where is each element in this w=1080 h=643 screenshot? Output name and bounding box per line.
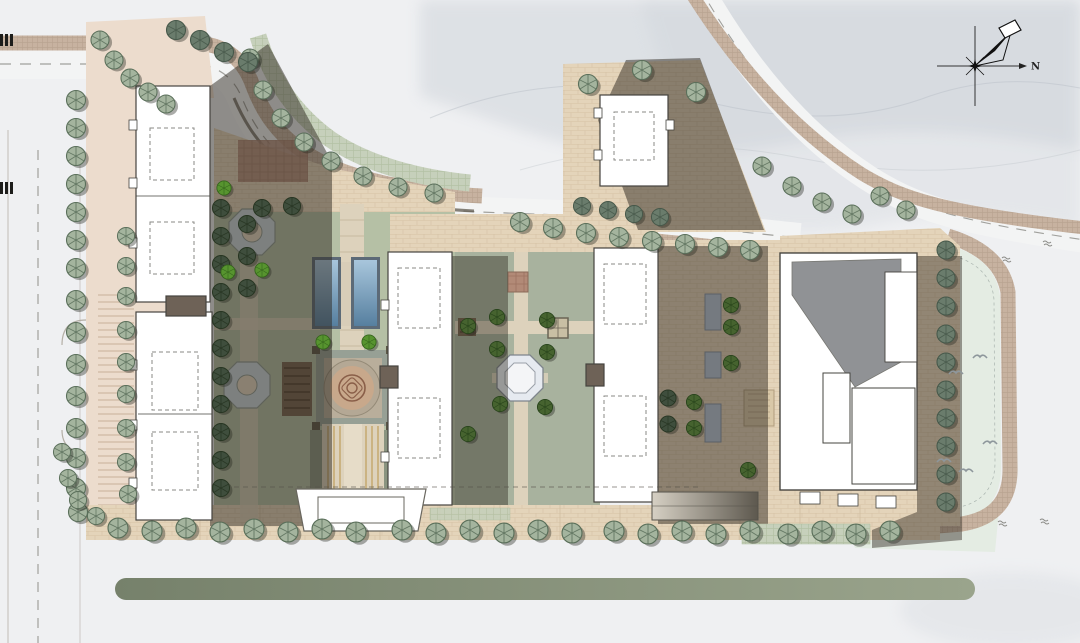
retail-block <box>780 253 917 508</box>
master-plan-drawing: N <box>0 0 1080 643</box>
north-label: N <box>1031 62 1040 73</box>
stair-core <box>166 296 206 316</box>
reflecting-pool <box>354 260 377 326</box>
apartment-slab-center <box>380 252 452 505</box>
site-plan-canvas: N <box>0 0 1080 643</box>
north-block-building <box>594 95 674 186</box>
apartment-slab-east <box>586 248 658 502</box>
south-median-strip <box>115 578 975 600</box>
hedge-strip <box>430 508 510 520</box>
apartment-slab-west-north <box>129 86 210 302</box>
apartment-slab-west-south <box>129 312 212 520</box>
